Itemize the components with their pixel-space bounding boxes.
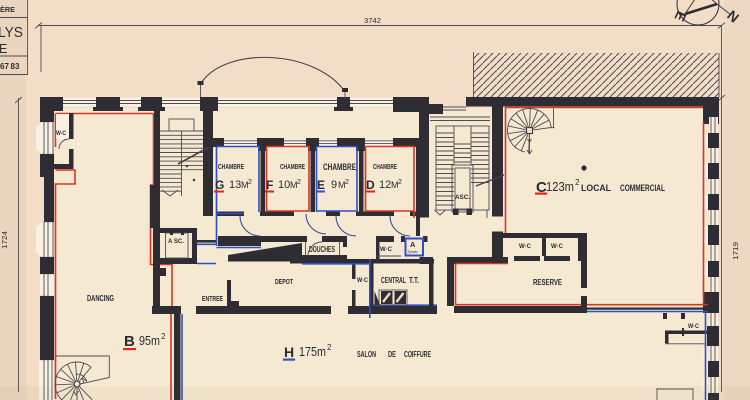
svg-text:2: 2 [161,332,166,341]
svg-text:ENTREE: ENTREE [202,294,223,303]
svg-text:SALON: SALON [357,350,376,359]
svg-text:W·C: W·C [380,246,392,253]
svg-text:CHAMBRE: CHAMBRE [218,162,244,171]
svg-text:7plafc: 7plafc [407,249,418,254]
svg-text:F: F [266,178,273,192]
svg-text:DEPOT: DEPOT [275,277,293,286]
svg-text:9: 9 [331,179,337,191]
svg-text:COIFFURE: COIFFURE [404,350,431,359]
svg-text:DOUCHES: DOUCHES [309,245,335,254]
svg-text:2: 2 [575,178,580,187]
svg-text:2: 2 [327,343,332,352]
svg-text:CHAMBRE: CHAMBRE [280,162,305,171]
svg-text:A SC.: A SC. [168,238,184,245]
svg-text:DE: DE [388,350,396,359]
svg-text:DANCING: DANCING [87,294,114,303]
svg-text:2: 2 [248,179,252,186]
svg-text:W·C: W·C [551,243,563,250]
svg-text:2: 2 [345,179,349,186]
svg-text:A: A [410,240,416,249]
svg-text:W·C: W·C [357,277,368,284]
svg-text:2: 2 [297,179,301,186]
svg-text:175m: 175m [299,344,326,359]
svg-text:W-C: W-C [56,131,67,137]
svg-text:95m: 95m [139,333,160,348]
svg-text:W·C: W·C [519,243,531,250]
svg-text:G: G [215,178,224,192]
svg-text:B: B [124,333,135,350]
svg-text:CENTRAL: CENTRAL [381,276,406,285]
svg-text:CHAMBRE: CHAMBRE [323,162,356,173]
svg-text:LOCAL: LOCAL [581,183,611,193]
svg-text:T.T.: T.T. [409,276,419,285]
svg-text:H: H [284,344,294,360]
svg-text:COMMERCIAL: COMMERCIAL [620,183,665,193]
svg-text:RESERVE: RESERVE [533,278,563,287]
svg-text:13: 13 [229,179,241,191]
svg-text:3742: 3742 [364,18,381,25]
svg-text:123m: 123m [546,179,574,194]
svg-text:D: D [366,178,375,192]
svg-text:ASC.: ASC. [455,194,470,201]
svg-text:W·C: W·C [688,323,699,330]
svg-text:CHAMBRE: CHAMBRE [373,162,397,171]
svg-text:2: 2 [398,179,402,186]
svg-text:E: E [317,178,325,192]
svg-text:12: 12 [379,179,391,191]
svg-text:10: 10 [278,179,290,191]
